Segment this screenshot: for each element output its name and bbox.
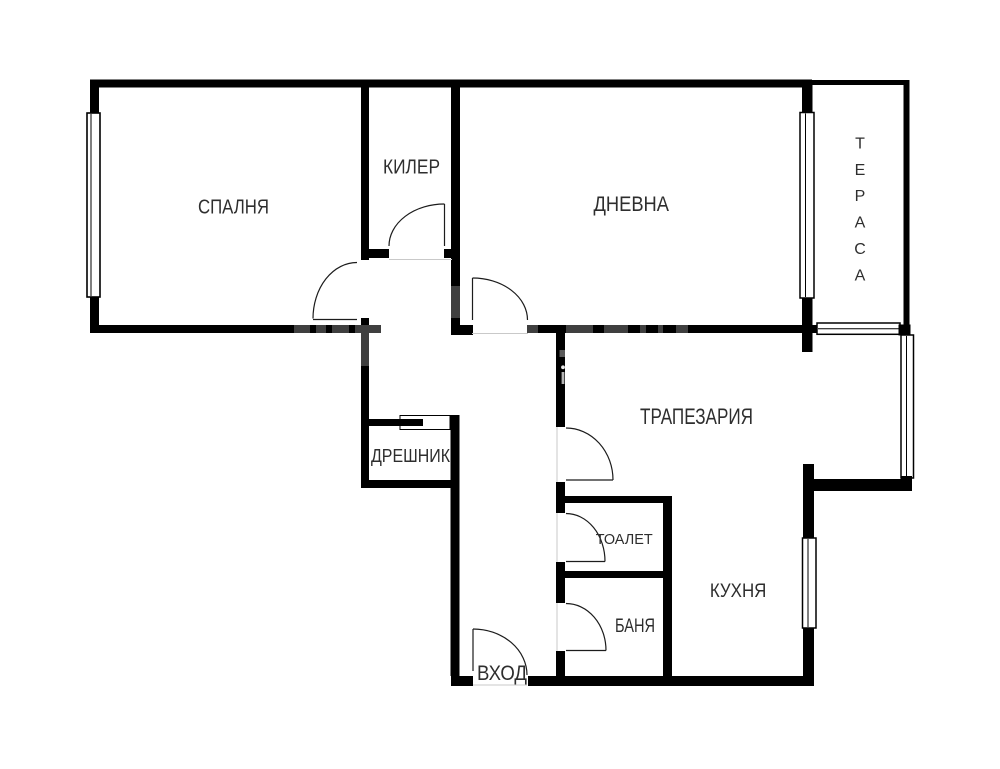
svg-text:ДНЕВНА: ДНЕВНА — [594, 193, 670, 216]
svg-text:КУХНЯ: КУХНЯ — [710, 581, 767, 602]
svg-text:Е: Е — [855, 162, 866, 179]
svg-text:КИЛЕР: КИЛЕР — [383, 157, 440, 179]
svg-text:Т: Т — [855, 136, 865, 153]
svg-text:ТОАЛЕТ: ТОАЛЕТ — [596, 531, 653, 548]
svg-text:Р: Р — [855, 188, 866, 205]
svg-text:ВХОД: ВХОД — [477, 662, 527, 685]
svg-text:ТРАПЕЗАРИЯ: ТРАПЕЗАРИЯ — [640, 404, 753, 429]
svg-text:СПАЛНЯ: СПАЛНЯ — [198, 197, 269, 219]
svg-text:БАНЯ: БАНЯ — [615, 616, 655, 637]
svg-text:ДРЕШНИК: ДРЕШНИК — [371, 446, 450, 466]
svg-text:А: А — [855, 215, 866, 232]
svg-text:С: С — [854, 241, 866, 258]
svg-text:А: А — [855, 267, 866, 284]
